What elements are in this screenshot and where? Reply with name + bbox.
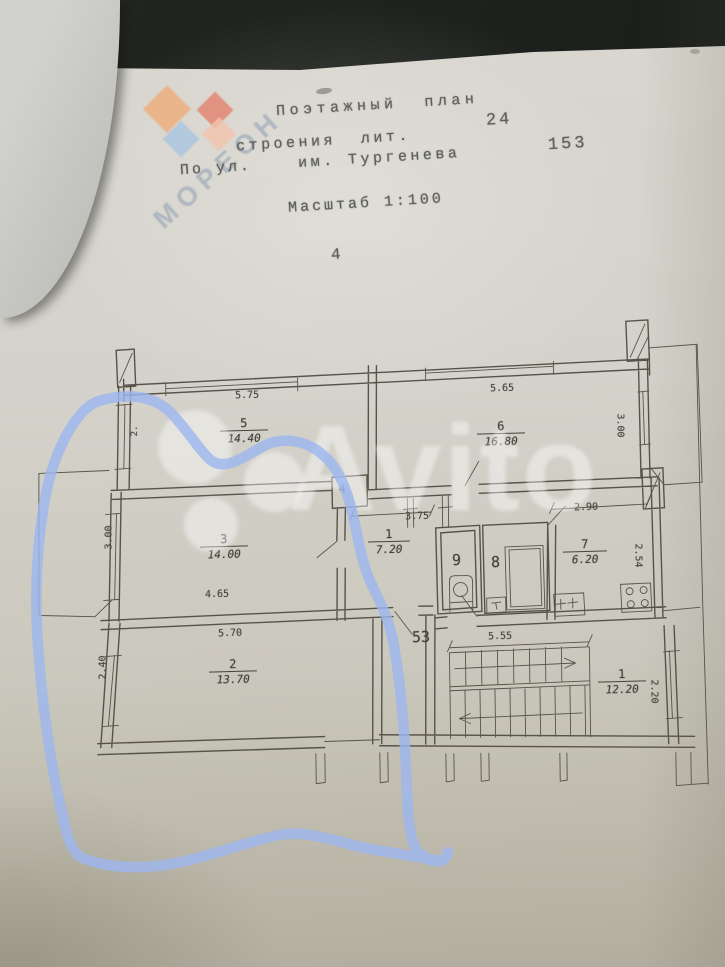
- blue-pen-annotation: [0, 0, 725, 967]
- photo-of-floor-plan-document: МОРЕОН Поэтажный план строения лит. 24 1…: [0, 0, 725, 967]
